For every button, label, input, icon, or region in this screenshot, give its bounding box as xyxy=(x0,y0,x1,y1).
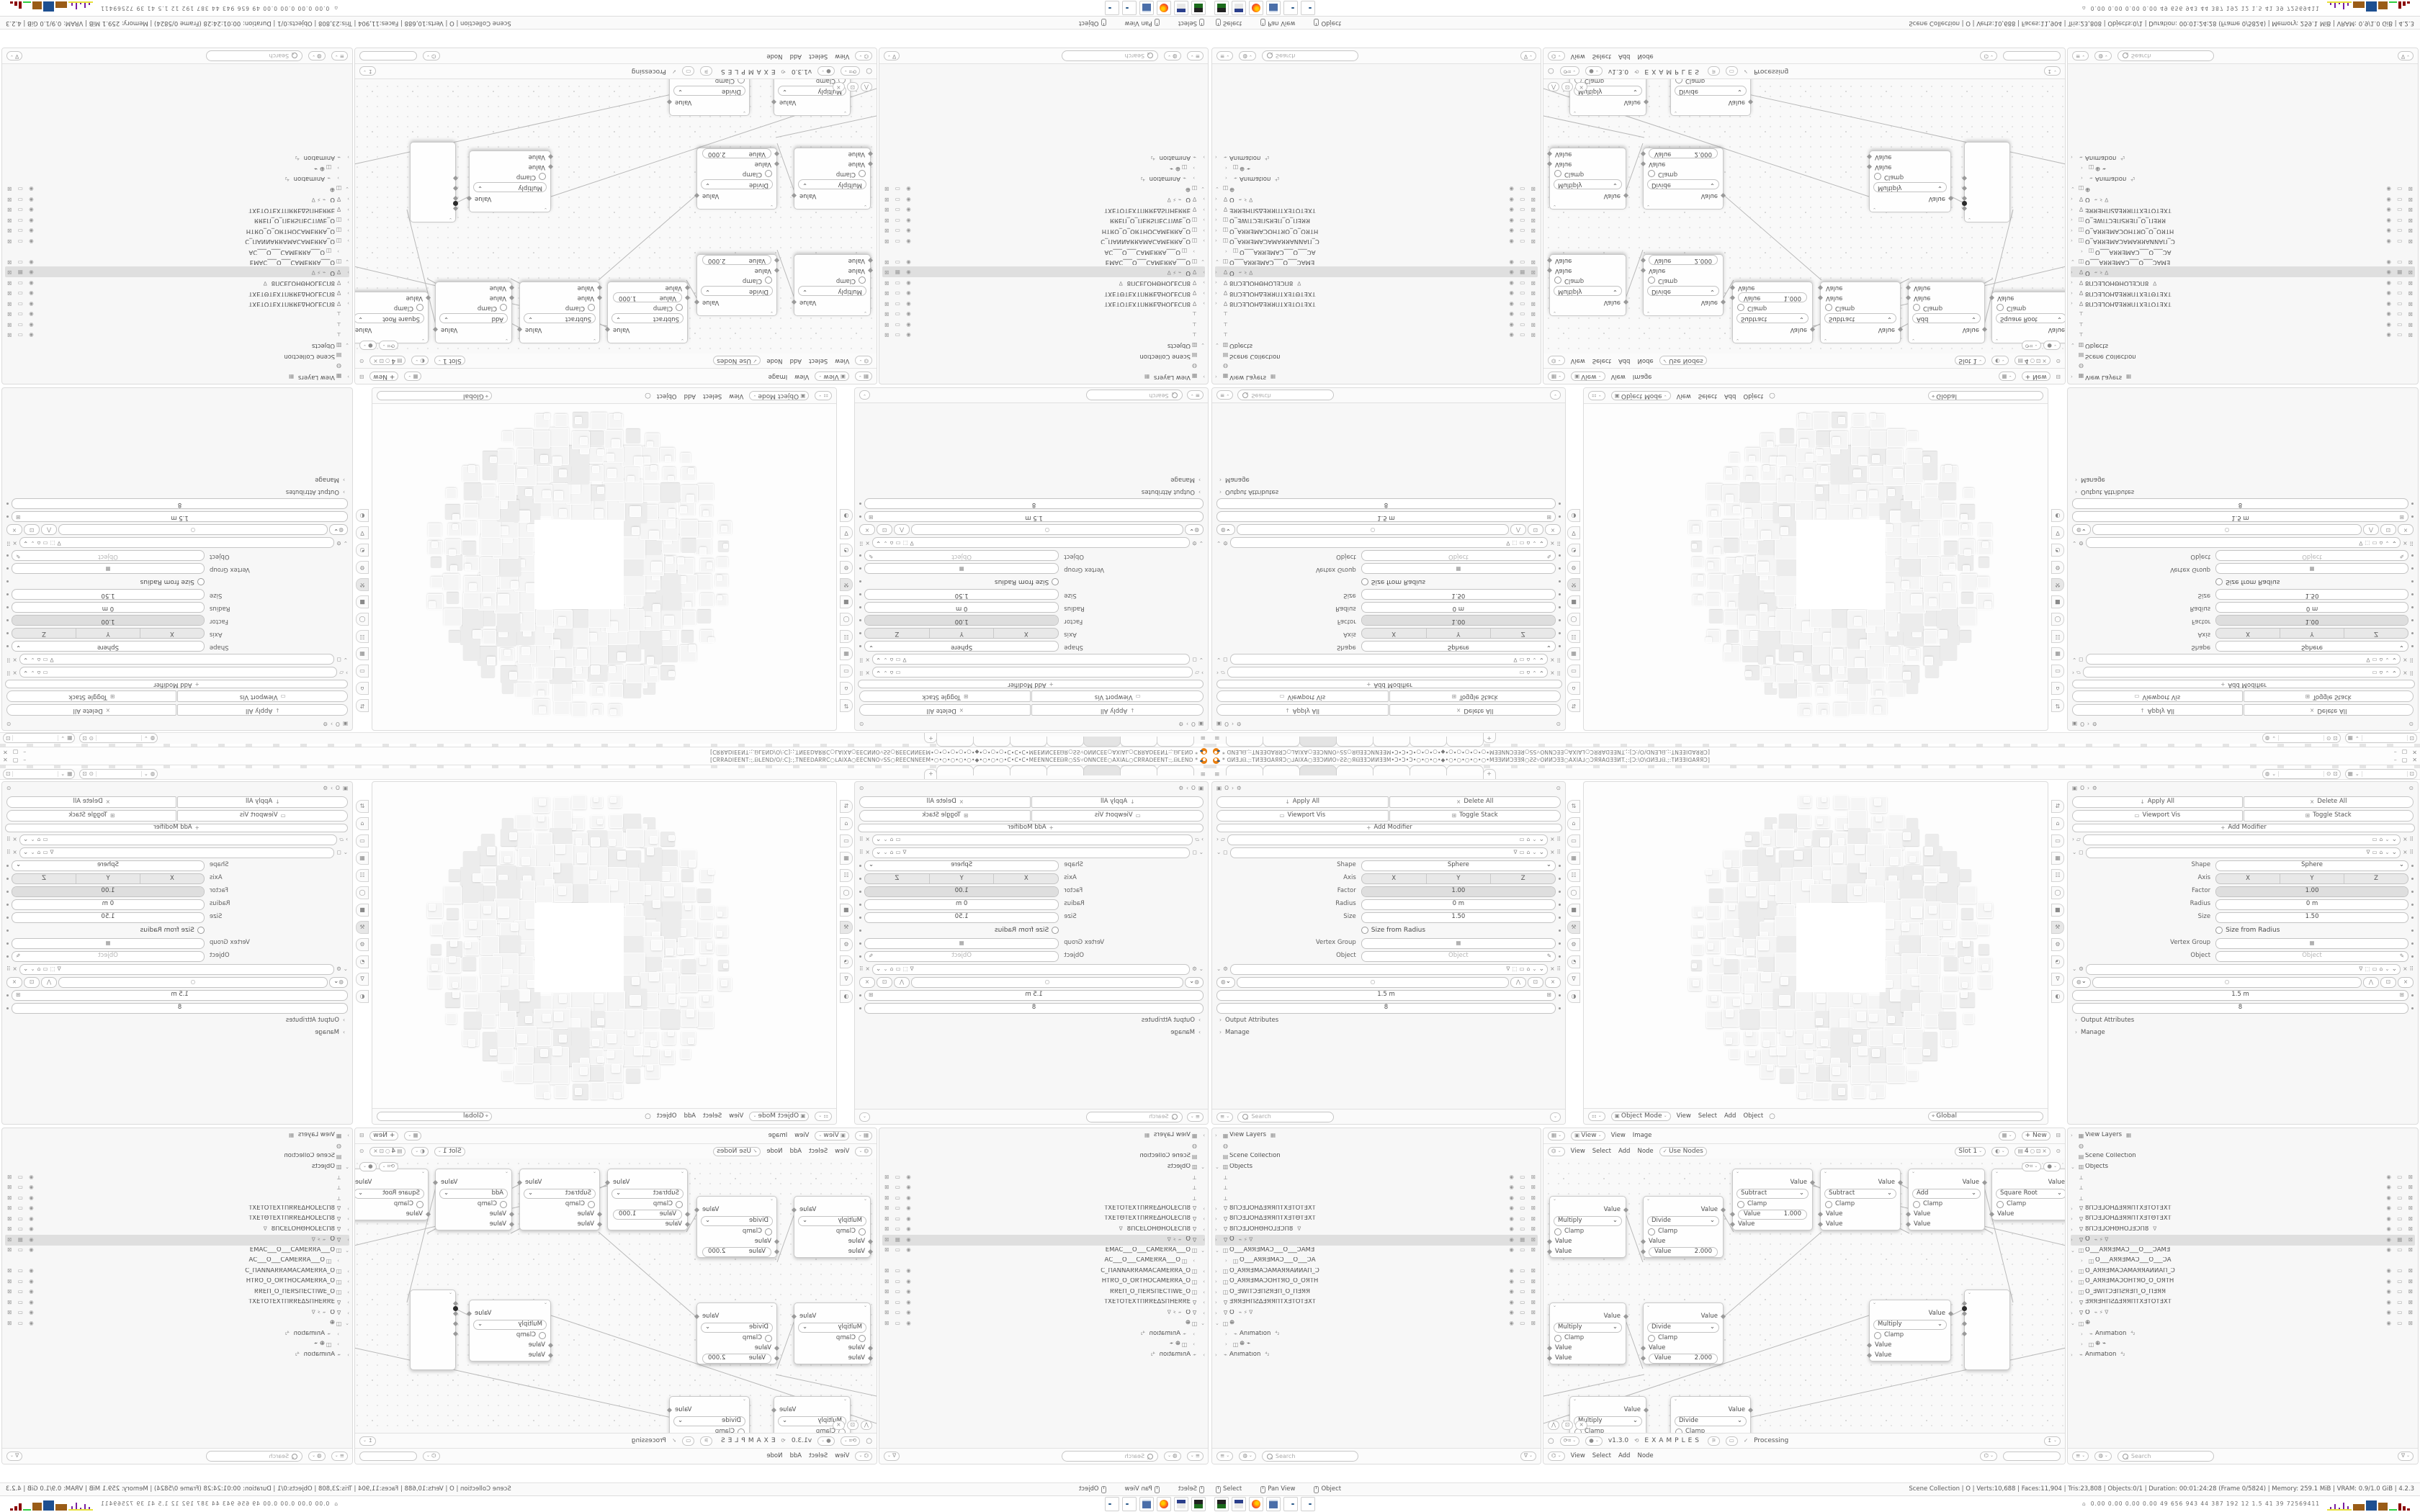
geo-input-2[interactable]: 8 xyxy=(864,1003,1204,1014)
hamburger-icon[interactable]: ≡ xyxy=(1214,771,1220,778)
unlink-button[interactable]: × xyxy=(859,524,875,535)
geo-input-2[interactable]: 8 xyxy=(2072,498,2408,509)
output-attributes-section[interactable]: ›Output Attributes xyxy=(859,486,1204,496)
canvas-overlay-pill[interactable]: ⟳⌗⌄ xyxy=(2022,341,2042,350)
compositor-menu-node[interactable]: Node xyxy=(1637,1148,1653,1156)
axis-x-toggle[interactable]: X xyxy=(1362,629,1427,638)
outliner-row[interactable]: ›◫⊕ ⌁ xyxy=(5,1339,349,1350)
math-operation-dropdown[interactable]: Divide⌄ xyxy=(701,1216,773,1226)
outliner-search-input[interactable]: Search xyxy=(206,1451,302,1462)
canvas-tool-pill[interactable]: ⋀ xyxy=(861,1421,872,1430)
viewport-menu-add[interactable]: Add xyxy=(1724,392,1736,400)
display-dropdown[interactable]: ◍⌄ xyxy=(2094,51,2112,60)
pin-icon[interactable]: ⊙ xyxy=(2409,786,2414,792)
clamp-checkbox[interactable]: Clamp xyxy=(794,1333,870,1344)
overlay-dropdown[interactable]: ●⌄ xyxy=(817,66,835,76)
outliner-row[interactable]: ›▦View Layers ▦ xyxy=(5,372,349,382)
editor-type-dropdown[interactable]: ▦⌄ xyxy=(855,1131,872,1140)
node-output-stub[interactable]: ⌄ xyxy=(1964,142,2010,222)
apply-all-button[interactable]: ↓Apply All xyxy=(1216,704,1389,716)
outliner-row[interactable]: ▤Scene Collection xyxy=(1215,351,1538,361)
properties-tab-icon-6[interactable]: ◯ xyxy=(356,613,369,626)
outliner-row[interactable]: ›◫O_AЯЯƎMAƆAMAЯЯAͶͶAΠ_Ɔ◉ ▭ ⊠ xyxy=(5,1266,349,1277)
math-node-subtract[interactable]: ⌄ValueSubtract⌄ClampValue1.000Value xyxy=(1732,1169,1813,1230)
use-nodes-checkbox[interactable]: ✓ Use Nodes xyxy=(713,1147,761,1156)
size-from-radius-checkbox[interactable] xyxy=(1361,578,1368,585)
axis-y-toggle[interactable]: Y xyxy=(2280,874,2344,883)
filter-dropdown[interactable]: ≡⌄ xyxy=(2072,1452,2089,1461)
properties-tab-icon-9[interactable]: ⚙ xyxy=(356,561,369,574)
pin-icon[interactable]: ⊙ xyxy=(359,357,364,364)
radius-input[interactable]: 0 m xyxy=(12,899,205,910)
filter-funnel-dropdown[interactable]: ∇⌄ xyxy=(2398,51,2414,60)
outliner-row[interactable]: ›∇8ՈƆƎ⅃ΟHΔƎЯЯՈTXƎTΘTƎXT◉ ▭ ⊠ xyxy=(882,288,1205,299)
math-operation-dropdown[interactable]: Multiply⌄ xyxy=(473,1320,547,1330)
outliner-row[interactable]: ⌄◫O___AЯЯƎMAƆ___O___ƆAMƎ◉ ▭ ⊠ xyxy=(882,1246,1205,1256)
modifier-header-row[interactable]: ⌄◻∇▭⌂⌄⌄×⠿ xyxy=(6,847,348,858)
factor-input[interactable]: 1.00 xyxy=(864,886,1059,897)
geo-input-1[interactable]: 1.5 m⊞ xyxy=(2072,511,2408,522)
filter-funnel-dropdown[interactable]: ∇⌄ xyxy=(2398,1452,2414,1461)
clamp-checkbox[interactable]: Clamp xyxy=(1909,1200,1984,1210)
properties-tab-icon-6[interactable]: ◯ xyxy=(2051,613,2064,626)
math-operation-dropdown[interactable]: Subtract⌄ xyxy=(524,1189,596,1199)
node-canvas[interactable]: ⌄ValueMultiply⌄ClampValueValue⌄ValueMult… xyxy=(355,78,877,354)
close-button[interactable]: ✕ xyxy=(3,748,8,755)
viewport-menu-select[interactable]: Select xyxy=(1698,392,1717,400)
size-input[interactable]: 1.50 xyxy=(2215,912,2408,923)
outliner-row[interactable]: ›⌁Animation ⁴₂ xyxy=(1215,173,1538,184)
modifier-header-row[interactable]: ›▱▭⌂⌄⌄×⠿ xyxy=(2072,834,2414,845)
image-menu-view[interactable]: View xyxy=(1611,1133,1626,1140)
modifier-header-row[interactable]: ⌄⚙∇⬚▭⌂⌄⌄×⠿ xyxy=(859,537,1204,548)
viewport-menu-view[interactable]: View xyxy=(729,1113,743,1120)
node-canvas[interactable]: ⌄ValueMultiply⌄ClampValueValue⌄ValueMult… xyxy=(1543,1158,2065,1434)
outliner-row[interactable]: ›∇O ⌁ ⚡ ∇◉ ▭ ⊠ xyxy=(882,1308,1205,1319)
geo-input-2[interactable]: 8 xyxy=(864,498,1204,509)
close-button[interactable]: ✕ xyxy=(3,757,8,763)
toggle-stack-button[interactable]: ⊞Toggle Stack xyxy=(2244,690,2414,702)
vertex-group-input[interactable]: ▦ xyxy=(864,563,1059,574)
properties-tab-icon-12[interactable]: ◑ xyxy=(1567,509,1580,522)
nav-pill[interactable]: ↥⌄ xyxy=(359,1436,376,1446)
outliner-row[interactable]: ›⌁Animation ⁴₂ xyxy=(2071,152,2415,163)
modifier-header-row[interactable]: ›▱▭⌂⌄⌄×⠿ xyxy=(6,834,348,845)
outliner-row[interactable]: ›∇O ⌁ ⚡ ∇◉ ▭ ⊠ xyxy=(5,194,349,204)
clamp-checkbox[interactable]: Clamp xyxy=(794,1227,870,1237)
outliner-row[interactable]: ⟂◉ ▭ ⊠ xyxy=(1215,330,1538,341)
add-workspace-button[interactable]: + xyxy=(1483,733,1496,743)
viewport-menu-select[interactable]: Select xyxy=(1698,1113,1717,1120)
size-input[interactable]: 1.50 xyxy=(2215,589,2408,600)
math-operation-dropdown[interactable]: Divide⌄ xyxy=(1675,1416,1747,1426)
editor-type-dropdown[interactable]: ⌬⌄ xyxy=(855,51,872,60)
axis-y-toggle[interactable]: Y xyxy=(76,629,140,638)
math-node-divide[interactable]: ⌄ValueDivide⌄ClampValueValue2.000 xyxy=(696,148,777,210)
image-new-button[interactable]: + New xyxy=(369,372,398,381)
hamburger-icon[interactable]: ≡ xyxy=(1200,734,1206,741)
geonodes-menu-select[interactable]: Select xyxy=(1592,1453,1611,1460)
outliner-row[interactable]: ⟂◉ ▭ ⊠ xyxy=(2071,319,2415,330)
geo-input-1[interactable]: 1.5 m⊞ xyxy=(1216,990,1556,1001)
math-operation-dropdown[interactable]: Divide⌄ xyxy=(701,286,773,296)
pin-icon[interactable]: ⊙ xyxy=(6,721,11,727)
math-node-subtract[interactable]: ⌄ValueSubtract⌄ClampValue1.000Value xyxy=(607,1169,688,1230)
editor-type-dropdown[interactable]: ⌬⌄ xyxy=(855,1452,872,1461)
math-node-multiply[interactable]: ⌄ValueMultiply⌄ClampValueValue xyxy=(794,1196,871,1258)
properties-tab-icon-11[interactable]: ∇ xyxy=(1567,526,1580,539)
properties-tab-icon-4[interactable]: ▦ xyxy=(1567,852,1580,865)
canvas-overlay-pill[interactable]: ●⌄ xyxy=(2043,1162,2061,1171)
properties-tab-icon-8[interactable]: ⚒ xyxy=(1567,578,1580,591)
outliner-row[interactable]: ◍ xyxy=(5,1141,349,1152)
outliner-row[interactable]: ⌄◫O___AЯЯƎMAƆ___O___ƆAMƎ◉ ▭ ⊠ xyxy=(2071,1246,2415,1256)
properties-tab-icon-6[interactable]: ◯ xyxy=(840,886,853,899)
outliner-row[interactable]: ▤Scene Collection xyxy=(5,1151,349,1162)
math-node-multiply[interactable]: ⌄ValueMultiply⌄ClampValueValue xyxy=(794,148,871,210)
workspace-tab-6[interactable] xyxy=(1410,737,1447,747)
compositor-menu-add[interactable]: Add xyxy=(790,1148,802,1156)
blender-app-icon[interactable] xyxy=(1283,1497,1298,1511)
outliner-row[interactable]: ⌄◫⊕◉ ▭ ⊠ xyxy=(882,184,1205,194)
nav-pill[interactable]: ↥⌄ xyxy=(359,66,376,76)
properties-tab-icon-5[interactable]: ☷ xyxy=(840,869,853,882)
properties-tab-icon-11[interactable]: ∇ xyxy=(840,973,853,986)
properties-tab-icon-9[interactable]: ⚙ xyxy=(1567,938,1580,951)
copy-button[interactable]: ⊡ xyxy=(1528,524,1543,535)
geonodes-menu-view[interactable]: View xyxy=(835,1453,849,1460)
math-operation-dropdown[interactable]: Divide⌄ xyxy=(1647,1323,1719,1333)
display-mode-dropdown[interactable]: ≡⌄ xyxy=(1216,1112,1233,1122)
workspace-tab-7[interactable] xyxy=(936,737,974,747)
axis-y-toggle[interactable]: Y xyxy=(1427,629,1492,638)
properties-tab-icon-7[interactable]: ■ xyxy=(2051,904,2064,917)
value-input[interactable]: Value1.000 xyxy=(1738,292,1807,302)
outliner-row[interactable]: ›∇8ՈƆƎ⅃ΟHΔƎЯЯՈTXƎTOTƎXT◉ ▭ ⊠ xyxy=(5,298,349,309)
outliner-row[interactable]: ›⌁Animation ⁴₂ xyxy=(1215,152,1538,163)
delete-all-button[interactable]: ×Delete All xyxy=(6,796,177,808)
outliner-row[interactable]: ›⌁Animation ⁴₂ xyxy=(882,1350,1205,1361)
editor-n-toggle[interactable]: ▭ xyxy=(1726,1436,1738,1446)
canvas-tool-pill[interactable]: × xyxy=(833,82,844,91)
image-view-dropdown[interactable]: ▣ View⌄ xyxy=(815,372,848,381)
axis-x-toggle[interactable]: X xyxy=(994,629,1059,638)
workspace-tab-5[interactable] xyxy=(1010,737,1047,747)
fake-user-button[interactable]: ⋀ xyxy=(41,977,57,988)
outliner-row[interactable]: ⟂◉ ▭ ⊠ xyxy=(1215,1193,1538,1204)
outliner-row[interactable]: ›⌁Animation ⁴₂ xyxy=(2071,1350,2415,1361)
outliner-row[interactable]: ⌄◫O___AЯЯƎMAƆ___O___ƆAMƎ◉ ▭ ⊠ xyxy=(5,256,349,267)
image-menu-view[interactable]: View xyxy=(794,1133,809,1140)
math-node-square-root[interactable]: ⌄ValueSquare Root⌄ClampValue xyxy=(1991,1169,2065,1220)
node-editor[interactable]: ▦⌄ ▣ View⌄ ViewImage ▦⌄ + New ⊟ ⏣⌄ ViewS… xyxy=(354,1128,877,1464)
properties-tab-icon-6[interactable]: ◯ xyxy=(2051,886,2064,899)
math-node-multiply[interactable]: ⌄ValueMultiply⌄ClampValueValue xyxy=(469,150,551,212)
maximize-button[interactable]: ▢ xyxy=(2402,757,2408,763)
clamp-checkbox[interactable]: Clamp xyxy=(1550,168,1626,179)
outliner-row[interactable]: ◍ xyxy=(5,361,349,372)
outliner-row[interactable]: ›◫O_AЯЯƎMAƆOHTЯO_O_OЯTH◉ ▭ ⊠ xyxy=(5,1277,349,1287)
value-input[interactable]: Value2.000 xyxy=(1649,148,1718,158)
clamp-checkbox[interactable]: Clamp xyxy=(1644,275,1723,285)
math-operation-dropdown[interactable]: Multiply⌄ xyxy=(473,182,547,192)
workspace-tab-6[interactable] xyxy=(1410,765,1447,775)
math-operation-dropdown[interactable]: Add⌄ xyxy=(439,1189,508,1199)
outliner-row[interactable]: ›∇ƎЯЯƎHΠƧΔƎЯЯΠTXƎTOTƎXT◉ ▭ ⊠ xyxy=(882,204,1205,215)
outliner-row[interactable]: ⌄◫⊕◉ ▭ ⊠ xyxy=(882,1318,1205,1329)
canvas-tool-pill[interactable]: × xyxy=(1575,1421,1587,1430)
workspace-tab-6[interactable] xyxy=(973,765,1010,775)
toggle-stack-button[interactable]: ⊞Toggle Stack xyxy=(6,810,177,822)
outliner-row[interactable]: ›◫O_ƎWITƆƎΠƧЯƎΠ_O_ΠƎЯЯ◉ ▭ ⊠ xyxy=(1215,1287,1538,1298)
radius-input[interactable]: 0 m xyxy=(1361,602,1556,613)
outliner-row[interactable]: ⌄▥Objects xyxy=(1215,1162,1538,1173)
canvas-tool-pill[interactable]: ⋀ xyxy=(1548,1421,1559,1430)
workspace-tab-2[interactable] xyxy=(1263,765,1300,775)
outliner-row[interactable]: ›⌁Animation ⁴₂ xyxy=(5,1350,349,1361)
pin-icon[interactable]: ⊙ xyxy=(1556,721,1561,727)
viewport-vis-button[interactable]: ▭Viewport Vis xyxy=(1032,690,1204,702)
unlink-button[interactable]: × xyxy=(1545,524,1561,535)
radius-input[interactable]: 0 m xyxy=(2215,899,2408,910)
outliner-row[interactable]: ›∇O ⌁ ⚡ ∇◉ ▭ ⊠ xyxy=(1215,1308,1538,1319)
toggle-stack-button[interactable]: ⊞Toggle Stack xyxy=(859,690,1031,702)
overlay-dropdown[interactable]: ●⌄ xyxy=(1585,1436,1603,1446)
workspace-tab-5[interactable] xyxy=(1010,765,1047,775)
pin-icon[interactable]: ⊙ xyxy=(859,786,864,792)
compositor-menu-node[interactable]: Node xyxy=(766,1148,782,1156)
axis-y-toggle[interactable]: Y xyxy=(929,629,994,638)
outliner-row[interactable]: ›◫O_AЯЯƎMAƆAMAЯЯAͶͶAΠ_Ɔ◉ ▭ ⊠ xyxy=(1215,1266,1538,1277)
unlink-button[interactable]: × xyxy=(2398,524,2414,535)
image-new-button[interactable]: + New xyxy=(2022,372,2051,381)
terminal-app-icon[interactable] xyxy=(1191,1497,1206,1511)
workspace-tab-4[interactable] xyxy=(1047,737,1084,747)
snapping-dropdown[interactable]: ⚞ xyxy=(1708,1436,1720,1446)
axis-z-toggle[interactable]: Z xyxy=(865,629,929,638)
modifier-header-row[interactable]: ⌄◻∇▭⌂⌄⌄×⠿ xyxy=(1216,654,1561,665)
axis-x-toggle[interactable]: X xyxy=(2216,629,2280,638)
clamp-checkbox[interactable]: Clamp xyxy=(670,78,749,85)
geonodes-menu-add[interactable]: Add xyxy=(790,53,802,60)
outliner-row[interactable]: ⌄◫O___AЯЯƎMAƆ___O___ƆAMƎ◉ ▭ ⊠ xyxy=(2071,256,2415,267)
math-node-square-root[interactable]: ⌄ValueSquare Root⌄ClampValue xyxy=(355,292,429,343)
canvas-overlay-pill[interactable]: ⟳⌗⌄ xyxy=(379,341,399,350)
outliner-row[interactable]: ›∇8ՈƆƎ⅃ΟHΔƎЯЯՈTXƎTΘTƎXT◉ ▭ ⊠ xyxy=(1215,288,1538,299)
outliner-row[interactable]: ›◫O_AЯЯƎMAƆOHTЯO_O_OЯTH◉ ▭ ⊠ xyxy=(882,225,1205,236)
geonodes-menu-add[interactable]: Add xyxy=(790,1453,802,1460)
outliner-row[interactable]: ›∇O ⌁ ⚡ ∇◉ ▭ ⊠ xyxy=(2071,1308,2415,1319)
apply-all-button[interactable]: ↓Apply All xyxy=(1032,704,1204,716)
node-output-stub[interactable]: ⌄ xyxy=(1964,1290,2010,1370)
node-canvas[interactable]: ⌄ValueMultiply⌄ClampValueValue⌄ValueMult… xyxy=(355,1158,877,1434)
geo-input-1[interactable]: 1.5 m⊞ xyxy=(1216,511,1556,522)
viewport-menu-view[interactable]: View xyxy=(1677,1113,1691,1120)
math-operation-dropdown[interactable]: Subtract⌄ xyxy=(611,313,684,323)
filter-funnel-dropdown[interactable]: ∇⌄ xyxy=(6,1452,22,1461)
outliner-row[interactable]: ⌄▥Objects xyxy=(2071,340,2415,351)
properties-tab-icon-12[interactable]: ◑ xyxy=(356,509,369,522)
outliner-row[interactable]: ›∇8ՈƆƎ⅃ΟHΔƎЯЯՈTXƎTΘTƎXT◉ ▭ ⊠ xyxy=(882,1214,1205,1225)
math-operation-dropdown[interactable]: Divide⌄ xyxy=(1675,86,1747,96)
floppy-64-app-icon[interactable] xyxy=(1174,1497,1188,1511)
clamp-checkbox[interactable]: Clamp xyxy=(1992,302,2065,312)
editor-type-dropdown[interactable]: ⏣⌄ xyxy=(855,1147,872,1156)
outliner-row[interactable]: ›∇O ⌁ ⚡ ∇◉ ▦ ⊠ xyxy=(882,1235,1205,1246)
axis-z-toggle[interactable]: Z xyxy=(1491,874,1555,883)
compositor-menu-view[interactable]: View xyxy=(835,1148,849,1156)
geonodes-menu-node[interactable]: Node xyxy=(766,1453,782,1460)
outliner-row[interactable]: ⟂◉ ▭ ⊠ xyxy=(2071,1193,2415,1204)
outliner-row[interactable]: ›◫O_ƎWITƆƎΠƧЯƎΠ_O_ΠƎЯЯ◉ ▭ ⊠ xyxy=(2071,1287,2415,1298)
editor-n-toggle[interactable]: ▭ xyxy=(1726,66,1738,76)
outliner-row[interactable]: ›⌁Animation ⁴₂ xyxy=(5,152,349,163)
axis-z-toggle[interactable]: Z xyxy=(1491,629,1555,638)
outliner-row[interactable]: ›◫O_ƎWITƆƎΠƧЯƎΠ_O_ΠƎЯЯ◉ ▭ ⊠ xyxy=(2071,215,2415,225)
workspace-tab-3[interactable] xyxy=(1299,737,1337,747)
axis-x-toggle[interactable]: X xyxy=(994,874,1059,883)
outliner-search-input[interactable]: Search xyxy=(206,50,302,61)
math-node-divide[interactable]: ⌄ValueDivide⌄ClampValueValue3.000 xyxy=(669,1396,750,1434)
math-operation-dropdown[interactable]: Multiply⌄ xyxy=(798,1216,866,1226)
editor-type-dropdown[interactable]: ⚏⌄ xyxy=(815,1112,832,1121)
nodegroup-name-field[interactable]: ○ xyxy=(58,977,328,988)
properties-tab-icon-7[interactable]: ■ xyxy=(840,904,853,917)
outliner-row[interactable]: ›∇O ⌁ ⚡ ∇◉ ▦ ⊠ xyxy=(1215,267,1538,278)
properties-tab-icon-10[interactable]: ◔ xyxy=(2051,955,2064,968)
outliner-row[interactable]: ›▦View Layers ▦ xyxy=(882,1130,1205,1141)
properties-tab-icon-12[interactable]: ◑ xyxy=(2051,990,2064,1003)
math-node-divide[interactable]: ⌄ValueDivide⌄ClampValueValue2.000 xyxy=(696,254,777,316)
pin-icon[interactable]: ⊙ xyxy=(359,1148,364,1155)
value-input[interactable]: Value2.000 xyxy=(702,1354,771,1364)
axis-x-toggle[interactable]: X xyxy=(140,629,204,638)
outliner-row[interactable]: ›∇O ⌁ ⚡ ∇◉ ▭ ⊠ xyxy=(5,1308,349,1319)
add-workspace-button[interactable]: + xyxy=(924,769,937,779)
image-browse-dropdown[interactable]: ▦⌄ xyxy=(1999,372,2016,381)
object-input[interactable]: Object✎ xyxy=(1361,550,1556,561)
add-modifier-button[interactable]: +Add Modifier xyxy=(5,680,348,688)
math-operation-dropdown[interactable]: Multiply⌄ xyxy=(798,1323,866,1333)
math-operation-dropdown[interactable]: Multiply⌄ xyxy=(798,179,866,189)
viewport-menu-object[interactable]: Object xyxy=(657,1113,677,1120)
geo-datablock-field[interactable] xyxy=(359,1452,417,1461)
workspace-tab-7[interactable] xyxy=(936,765,974,775)
properties-tab-icon-12[interactable]: ◑ xyxy=(1567,990,1580,1003)
math-operation-dropdown[interactable]: Multiply⌄ xyxy=(1554,179,1622,189)
workspace-tab-3[interactable] xyxy=(1083,737,1121,747)
properties-tab-icon-8[interactable]: ⚒ xyxy=(356,921,369,934)
properties-tab-icon-5[interactable]: ☷ xyxy=(1567,869,1580,882)
blender-2-app-icon[interactable] xyxy=(1301,1,1315,15)
math-node-multiply[interactable]: ⌄ValueMultiply⌄ClampValueValue xyxy=(1869,150,1951,212)
toggle-stack-button[interactable]: ⊞Toggle Stack xyxy=(2244,810,2414,822)
outliner-row[interactable]: ›∇O ⌁ ⚡ ∇◉ ▦ ⊠ xyxy=(882,267,1205,278)
snapping-dropdown[interactable]: ⚞ xyxy=(700,1436,712,1446)
properties-tab-icon-8[interactable]: ⚒ xyxy=(1567,921,1580,934)
properties-tab-icon-9[interactable]: ⚙ xyxy=(840,561,853,574)
geo-datablock-dropdown[interactable]: ⌬⌄ xyxy=(1980,1452,1997,1461)
filter-funnel-dropdown[interactable]: ∇⌄ xyxy=(884,1452,900,1461)
hamburger-icon[interactable]: ≡ xyxy=(1214,734,1220,741)
properties-tab-icon-3[interactable]: ▭ xyxy=(1567,834,1580,847)
vertex-group-input[interactable]: ▦ xyxy=(2215,938,2408,949)
vertex-group-input[interactable]: ▦ xyxy=(12,563,205,574)
outliner-row[interactable]: ›∇8ՈƆƎ⅃ΟHΔƎЯЯՈTXƎTOTƎXT◉ ▭ ⊠ xyxy=(882,298,1205,309)
value-input[interactable]: Value1.000 xyxy=(613,1210,682,1220)
compositor-menu-add[interactable]: Add xyxy=(1618,357,1630,364)
object-input[interactable]: Object✎ xyxy=(2215,951,2408,962)
workspace-tab-1[interactable] xyxy=(1157,765,1194,775)
options-dropdown[interactable]: ⌄ xyxy=(1550,391,1561,400)
blender-2-app-icon[interactable] xyxy=(1301,1497,1315,1511)
toggle-stack-button[interactable]: ⊞Toggle Stack xyxy=(859,810,1031,822)
manage-section[interactable]: ›Manage xyxy=(2072,1028,2414,1038)
outliner-row[interactable]: ›◫⊕ ⌁ xyxy=(5,163,349,174)
render-result-dropdown[interactable]: ◐⌄ xyxy=(1991,356,2009,365)
geo-input-1[interactable]: 1.5 m⊞ xyxy=(864,990,1204,1001)
filter-dropdown[interactable]: ≡⌄ xyxy=(1187,51,1204,60)
properties-tab-icon-9[interactable]: ⚙ xyxy=(840,938,853,951)
geo-datablock-field[interactable] xyxy=(359,51,417,60)
options-dropdown[interactable]: ⌄ xyxy=(859,1112,870,1122)
display-mode-dropdown[interactable]: ≡⌄ xyxy=(1187,1112,1204,1122)
blender-2-app-icon[interactable] xyxy=(1105,1,1119,15)
math-operation-dropdown[interactable]: Subtract⌄ xyxy=(1824,1189,1896,1199)
modifier-header-row[interactable]: ›▱▭⌂⌄⌄×⠿ xyxy=(1216,834,1561,845)
outliner-row[interactable]: ⌄▥Objects xyxy=(882,1162,1205,1173)
outliner-row[interactable]: ›◫O_AЯЯƎMAƆOHTЯO_O_OЯTH◉ ▭ ⊠ xyxy=(1215,1277,1538,1287)
math-node-divide[interactable]: ⌄ValueDivide⌄ClampValueValue2.000 xyxy=(1643,1302,1724,1364)
modifier-header-row[interactable]: ⌄⚙∇⬚▭⌂⌄⌄×⠿ xyxy=(1216,964,1561,975)
viewport-vis-button[interactable]: ▭Viewport Vis xyxy=(1216,690,1389,702)
canvas-overlay-pill[interactable]: ⟳⌗⌄ xyxy=(379,1162,399,1171)
display-mode-dropdown[interactable]: ≡⌄ xyxy=(1216,391,1233,400)
math-node-square-root[interactable]: ⌄ValueSquare Root⌄ClampValue xyxy=(1991,292,2065,343)
editor-type-dropdown[interactable]: ▦⌄ xyxy=(855,372,872,381)
unlink-button[interactable]: × xyxy=(2398,977,2414,988)
properties-tab-icon-9[interactable]: ⚙ xyxy=(1567,561,1580,574)
use-nodes-checkbox[interactable]: ✓ Use Nodes xyxy=(1659,356,1707,365)
properties-tab-icon-3[interactable]: ▭ xyxy=(2051,834,2064,847)
outliner-row[interactable]: ⌄▥Objects xyxy=(2071,1162,2415,1173)
minimize-button[interactable]: – xyxy=(23,748,26,755)
math-operation-dropdown[interactable]: Add⌄ xyxy=(1912,313,1981,323)
use-nodes-checkbox[interactable]: ✓ Use Nodes xyxy=(713,356,761,365)
value-input[interactable]: Value2.000 xyxy=(1649,255,1718,265)
calculator-app-icon[interactable] xyxy=(1266,1,1281,15)
properties-tab-icon-3[interactable]: ▭ xyxy=(840,665,853,678)
object-input[interactable]: Object✎ xyxy=(1361,951,1556,962)
apply-all-button[interactable]: ↓Apply All xyxy=(2072,796,2243,808)
properties-tab-icon-2[interactable]: ⌂ xyxy=(356,817,369,830)
clamp-checkbox[interactable]: Clamp xyxy=(1550,1227,1626,1237)
outliner-row[interactable]: ›∇8ՈƆƎ⅃ΟHΘHΟ⅃ƎƆՈ8 ∇◉ ▭ ⊠ xyxy=(5,277,349,288)
outliner-row[interactable]: ›∇O ⌁ ⚡ ∇◉ ▦ ⊠ xyxy=(5,1235,349,1246)
manage-section[interactable]: ›Manage xyxy=(6,474,348,484)
outliner-row[interactable]: ›∇ƎЯЯƎHΠƧΔƎЯЯΠTXƎTOTƎXT◉ ▭ ⊠ xyxy=(2071,204,2415,215)
outliner-row[interactable]: ▤Scene Collection xyxy=(882,1151,1205,1162)
properties-tab-icon-2[interactable]: ⌂ xyxy=(840,682,853,695)
outliner-row[interactable]: ◍ xyxy=(1215,361,1538,372)
outliner-row[interactable]: ›∇8ՈƆƎ⅃ΟHΔƎЯЯՈTXƎTOTƎXT◉ ▭ ⊠ xyxy=(1215,298,1538,309)
pin-icon[interactable]: ⊙ xyxy=(6,786,11,792)
outliner-row[interactable]: ›∇8ՈƆƎ⅃ΟHΘHΟ⅃ƎƆՈ8 ∇◉ ▭ ⊠ xyxy=(1215,1225,1538,1236)
properties-tab-icon-9[interactable]: ⚙ xyxy=(2051,561,2064,574)
properties-search-input[interactable]: Search xyxy=(1237,390,1334,401)
outliner-row[interactable]: ›◫O_AЯЯƎMAƆOHTЯO_O_OЯTH◉ ▭ ⊠ xyxy=(882,1277,1205,1287)
properties-search-input[interactable]: Search xyxy=(1086,1112,1183,1122)
